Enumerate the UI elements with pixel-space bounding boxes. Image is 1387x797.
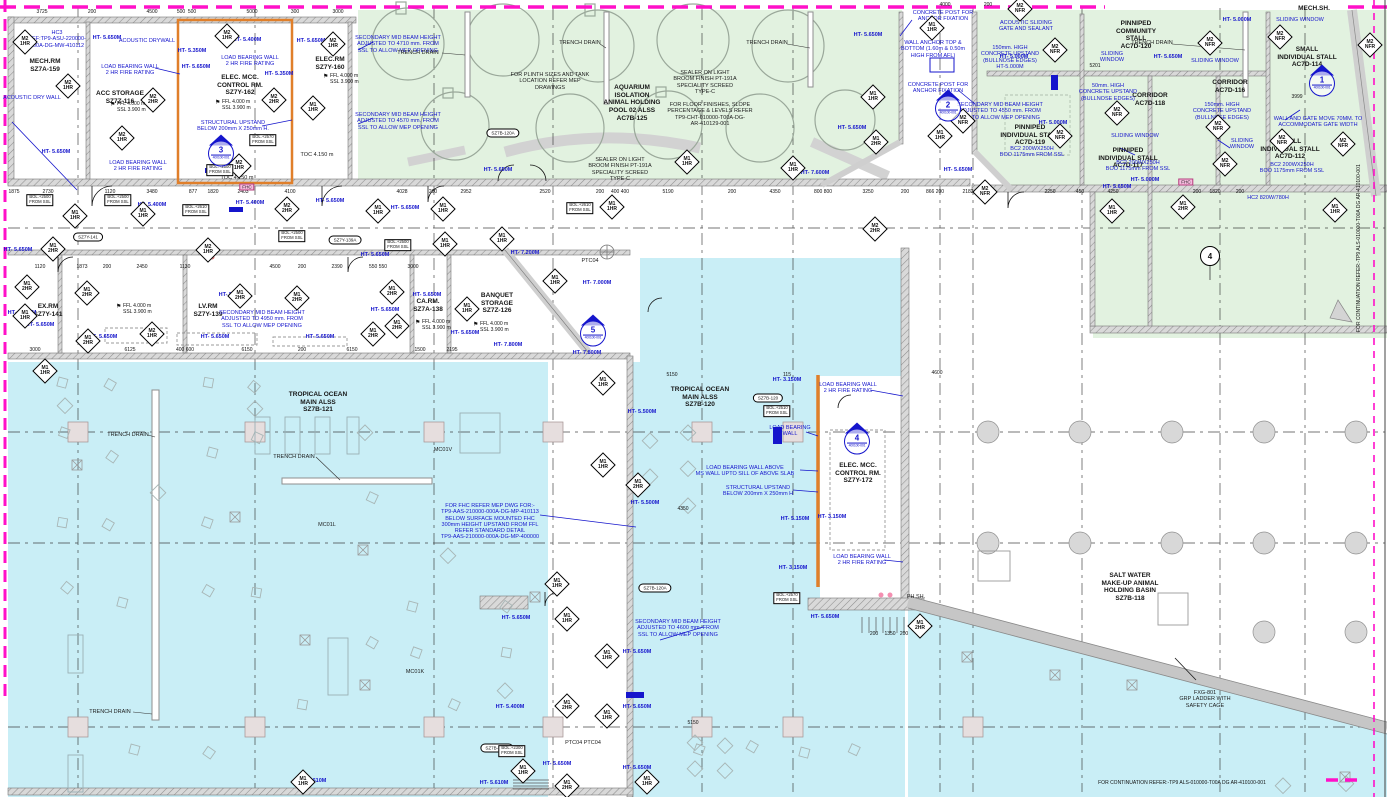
continuation-note-right: FOR CONTINUATION REFER:-TP9 ALS-010000-T…	[1356, 164, 1362, 332]
floor-plan-canvas: MECH.RMSZ7A-159ACC STORAGESZ7Z-116ELEC. …	[0, 0, 1387, 797]
continuation-note-bottom: FOR CONTINUATION REFER:-TP9 ALS-010000-T…	[1098, 780, 1266, 786]
floorplan-geometry	[0, 0, 1387, 797]
